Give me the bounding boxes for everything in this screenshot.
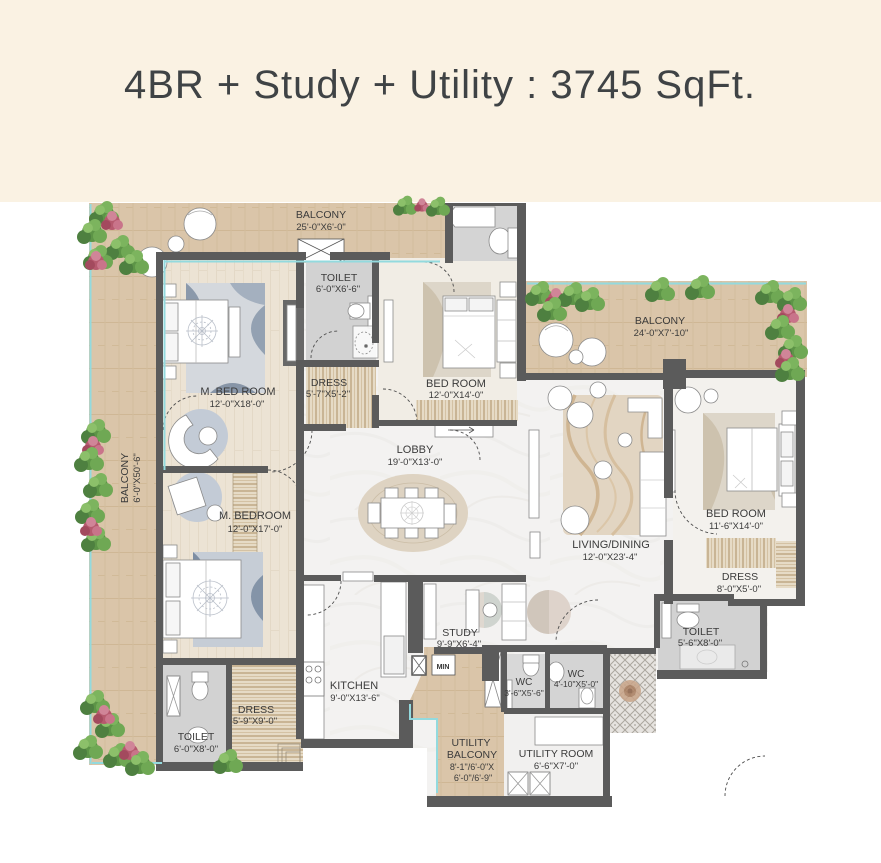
svg-text:6'-0"X8'-0": 6'-0"X8'-0": [174, 744, 218, 755]
svg-text:BALCONY: BALCONY: [119, 453, 131, 503]
svg-text:5'-9"X9'-0": 5'-9"X9'-0": [233, 716, 277, 727]
svg-text:6'-0"/6'-9": 6'-0"/6'-9": [454, 773, 492, 783]
svg-text:KITCHEN: KITCHEN: [330, 680, 378, 692]
svg-text:BED ROOM: BED ROOM: [706, 508, 766, 520]
svg-text:12'-0"X14'-0": 12'-0"X14'-0": [429, 390, 484, 401]
svg-text:6'-6"X7'-0": 6'-6"X7'-0": [534, 761, 578, 772]
svg-text:9'-0"X13'-6": 9'-0"X13'-6": [330, 693, 379, 704]
svg-text:DRESS: DRESS: [311, 377, 347, 389]
svg-text:UTILITY: UTILITY: [451, 737, 490, 749]
svg-text:BED ROOM: BED ROOM: [426, 378, 486, 390]
svg-text:M. BEDROOM: M. BEDROOM: [219, 510, 291, 522]
svg-text:BALCONY: BALCONY: [447, 749, 497, 761]
svg-text:5'-6"X8'-0": 5'-6"X8'-0": [678, 638, 722, 649]
svg-text:12'-0"X23'-4": 12'-0"X23'-4": [583, 552, 638, 563]
svg-text:LIVING/DINING: LIVING/DINING: [572, 539, 650, 551]
svg-text:3'-6"X5'-6": 3'-6"X5'-6": [504, 688, 544, 698]
svg-text:6'-0"X6'-6": 6'-0"X6'-6": [316, 284, 360, 295]
svg-text:4'-10"X5'-0": 4'-10"X5'-0": [554, 679, 598, 689]
svg-text:UTILITY ROOM: UTILITY ROOM: [519, 748, 593, 760]
svg-text:12'-0"X18'-0": 12'-0"X18'-0": [210, 399, 265, 410]
svg-text:TOILET: TOILET: [321, 272, 358, 284]
svg-text:9'-9"X6'-4": 9'-9"X6'-4": [437, 639, 481, 650]
svg-text:8'-0"X5'-0": 8'-0"X5'-0": [717, 584, 761, 595]
svg-text:5'-7"X5'-2": 5'-7"X5'-2": [306, 389, 350, 400]
svg-text:TOILET: TOILET: [178, 731, 215, 743]
svg-text:24'-0"X7'-10": 24'-0"X7'-10": [634, 328, 689, 339]
svg-text:6'-0"X50'-6": 6'-0"X50'-6": [132, 453, 143, 502]
svg-text:12'-0"X17'-0": 12'-0"X17'-0": [228, 524, 283, 535]
svg-text:LOBBY: LOBBY: [397, 444, 434, 456]
svg-text:STUDY: STUDY: [442, 627, 478, 639]
svg-text:4BR + Study + Utility : 3745 S: 4BR + Study + Utility : 3745 SqFt.: [124, 63, 756, 107]
svg-text:25'-0"X6'-0": 25'-0"X6'-0": [296, 222, 345, 233]
svg-text:DRESS: DRESS: [238, 704, 274, 716]
svg-text:11'-6"X14'-0": 11'-6"X14'-0": [709, 521, 763, 532]
svg-text:M. BED ROOM: M. BED ROOM: [200, 386, 275, 398]
svg-text:BALCONY: BALCONY: [296, 209, 346, 221]
svg-text:DRESS: DRESS: [722, 571, 758, 583]
svg-text:8'-1"/6'-0"X: 8'-1"/6'-0"X: [450, 762, 494, 772]
svg-text:BALCONY: BALCONY: [635, 315, 685, 327]
svg-text:19'-0"X13'-0": 19'-0"X13'-0": [388, 457, 443, 468]
svg-text:TOILET: TOILET: [683, 626, 720, 638]
svg-text:MIN: MIN: [437, 664, 450, 671]
svg-text:WC: WC: [516, 677, 533, 688]
